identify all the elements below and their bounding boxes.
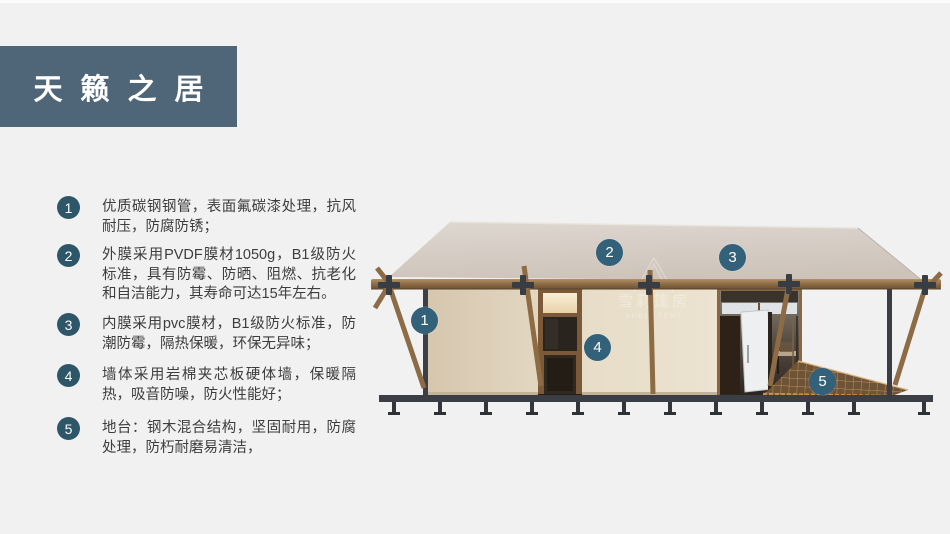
feature-item-1: 1 优质碳钢钢管，表面氟碳漆处理，抗风耐压，防腐防锈； xyxy=(57,198,357,237)
roof xyxy=(389,222,924,282)
feature-item-5: 5 地台：钢木混合结构，坚固耐用，防腐处理，防朽耐磨易清洁， xyxy=(57,419,357,458)
feature-item-4: 4 墙体采用岩棉夹芯板硬体墙，保暖隔热，吸音防噪，防火性能好； xyxy=(57,366,357,405)
feature-number-badge: 3 xyxy=(57,313,80,336)
feature-text: 地台：钢木混合结构，坚固耐用，防腐处理，防朽耐磨易清洁， xyxy=(102,419,356,458)
feature-number-badge: 5 xyxy=(57,417,80,440)
feature-text: 内膜采用pvc膜材，B1级防火标准，防潮防霉，隔热保暖，环保无异味； xyxy=(102,315,356,354)
watermark-cn: 雪莉篷房 xyxy=(618,292,690,310)
watermark-en: XUELI TENT xyxy=(625,311,683,320)
slide: 天籁之居 1 优质碳钢钢管，表面氟碳漆处理，抗风耐压，防腐防锈； 2 外膜采用P… xyxy=(0,0,950,534)
callout-marker-4: 4 xyxy=(584,334,611,361)
callout-marker-3: 3 xyxy=(719,244,746,271)
feature-number-badge: 2 xyxy=(57,244,80,267)
feature-text: 优质碳钢钢管，表面氟碳漆处理，抗风耐压，防腐防锈； xyxy=(102,198,356,237)
feature-item-3: 3 内膜采用pvc膜材，B1级防火标准，防潮防霉，隔热保暖，环保无异味； xyxy=(57,315,357,354)
top-strip xyxy=(0,0,950,3)
title-banner: 天籁之居 xyxy=(0,46,237,127)
feature-item-2: 2 外膜采用PVDF膜材1050g，B1级防火标准，具有防霉、防晒、阻燃、抗老化… xyxy=(57,246,357,305)
feature-number-badge: 1 xyxy=(57,196,80,219)
callout-marker-1: 1 xyxy=(411,307,438,334)
tent-illustration: 雪莉篷房 XUELI TENT xyxy=(370,195,950,440)
callout-marker-2: 2 xyxy=(596,239,623,266)
open-white-door xyxy=(741,310,772,392)
tent-render: 雪莉篷房 XUELI TENT xyxy=(370,195,950,440)
page-title: 天籁之居 xyxy=(15,66,221,108)
callout-marker-5: 5 xyxy=(809,368,836,395)
feature-text: 墙体采用岩棉夹芯板硬体墙，保暖隔热，吸音防噪，防火性能好； xyxy=(102,366,356,405)
feature-number-badge: 4 xyxy=(57,364,80,387)
porch-post xyxy=(887,289,892,402)
feature-text: 外膜采用PVDF膜材1050g，B1级防火标准，具有防霉、防晒、阻燃、抗老化和自… xyxy=(102,246,356,305)
